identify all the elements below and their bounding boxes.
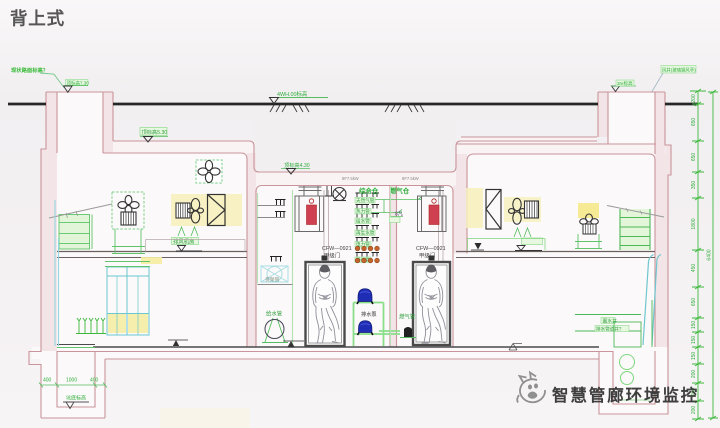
svg-text:综合仓: 综合仓 <box>359 186 379 195</box>
svg-text:顶标高4.30: 顶标高4.30 <box>284 161 310 169</box>
svg-text:甲级门: 甲级门 <box>324 252 340 260</box>
svg-text:450: 450 <box>691 264 697 273</box>
svg-text:150: 150 <box>691 336 697 345</box>
svg-text:1000: 1000 <box>66 378 77 384</box>
svg-text:200: 200 <box>691 370 697 379</box>
svg-text:6400: 6400 <box>707 249 713 260</box>
svg-text:400: 400 <box>90 378 99 384</box>
svg-text:燃气仓: 燃气仓 <box>390 186 410 195</box>
svg-text:150: 150 <box>691 352 697 361</box>
svg-text:坑底标高: 坑底标高 <box>66 395 86 402</box>
svg-text:8F7.5kW: 8F7.5kW <box>342 176 359 181</box>
svg-text:排水管道井？: 排水管道井？ <box>596 326 624 333</box>
svg-text:热力管: 热力管 <box>356 208 370 215</box>
svg-text:智慧管廊环境监控: 智慧管廊环境监控 <box>552 385 699 405</box>
svg-text:CFW—0921: CFW—0921 <box>322 246 352 252</box>
svg-text:200: 200 <box>691 94 697 103</box>
svg-text:4WH.00标高: 4WH.00标高 <box>277 90 308 98</box>
svg-text:350: 350 <box>691 181 697 190</box>
svg-text:650: 650 <box>691 118 697 127</box>
svg-text:150: 150 <box>691 321 697 330</box>
svg-text:现状路面标高？: 现状路面标高？ <box>11 66 48 74</box>
svg-text:1800: 1800 <box>691 218 697 229</box>
svg-text:置水井: 置水井 <box>603 318 618 325</box>
svg-text:200: 200 <box>691 406 697 415</box>
svg-text:3m标高: 3m标高 <box>617 80 633 87</box>
svg-text:排风机房: 排风机房 <box>173 237 195 245</box>
svg-text:天然气管: 天然气管 <box>356 197 375 204</box>
svg-text:顶标高5.30: 顶标高5.30 <box>142 128 168 136</box>
svg-text:货架管: 货架管 <box>265 276 280 283</box>
svg-text:给水管: 给水管 <box>356 217 370 224</box>
svg-text:给水管: 给水管 <box>266 310 283 318</box>
svg-text:燃气管: 燃气管 <box>399 313 416 321</box>
svg-text:8凡: 8凡 <box>395 212 403 218</box>
svg-text:排水泵: 排水泵 <box>361 310 377 318</box>
svg-text:风井(玻璃钢风亭): 风井(玻璃钢风亭) <box>662 67 696 74</box>
svg-text:8F7.5kW: 8F7.5kW <box>402 176 419 181</box>
svg-text:再生水管: 再生水管 <box>356 229 375 236</box>
svg-text:650: 650 <box>691 153 697 162</box>
svg-text:CFW—0921: CFW—0921 <box>416 246 446 252</box>
svg-text:400: 400 <box>43 378 52 384</box>
svg-text:650: 650 <box>691 298 697 307</box>
svg-text:甲级门: 甲级门 <box>419 252 435 260</box>
svg-text:背上式: 背上式 <box>10 9 65 29</box>
